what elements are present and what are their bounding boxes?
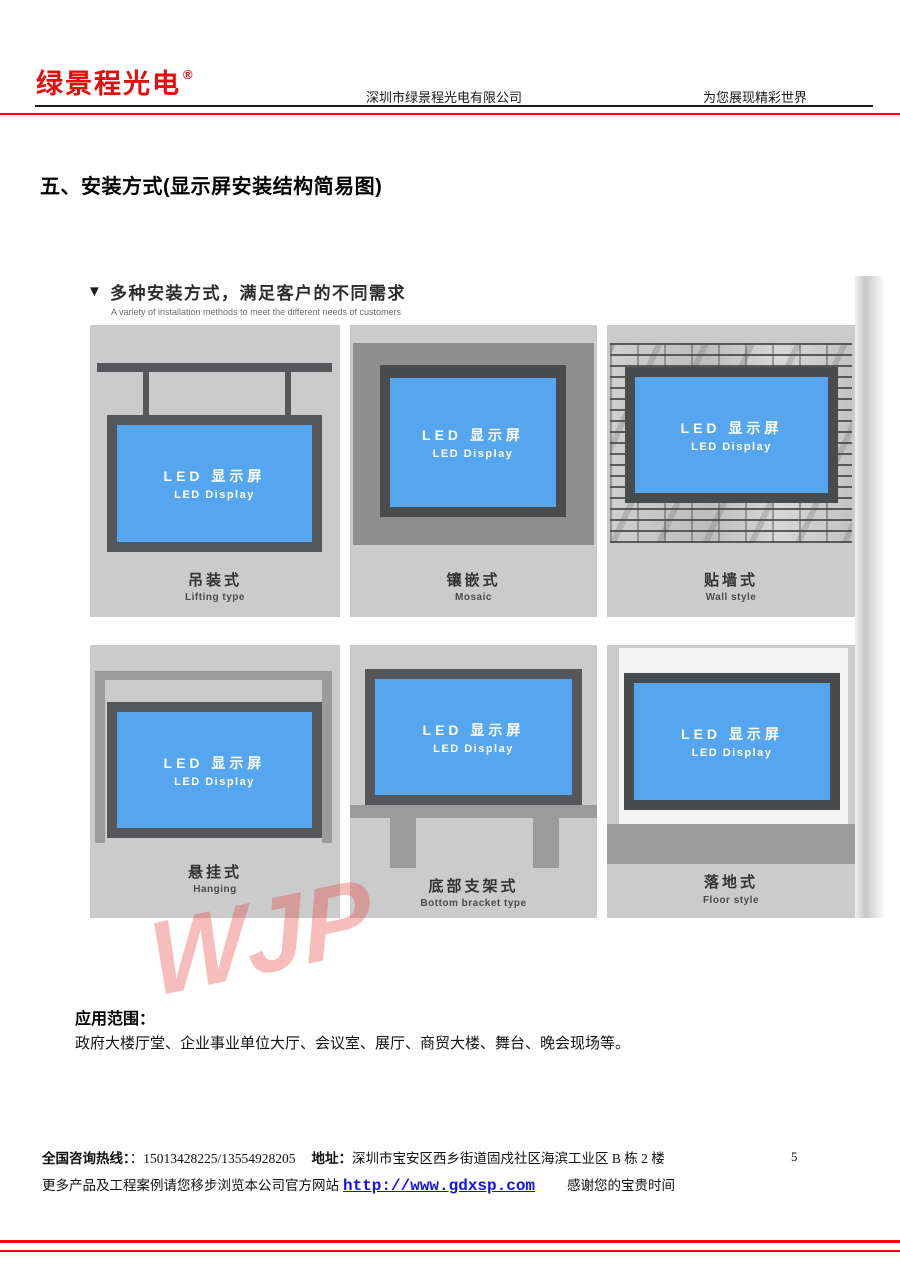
panel-subtitle: A variety of installation methods to mee… xyxy=(111,307,401,317)
company-logo: 绿景程光电® xyxy=(36,62,193,101)
hotline-label: 全国咨询热线： xyxy=(42,1151,130,1166)
hotline-numbers: ：15013428225/13554928205 xyxy=(130,1151,296,1166)
address-label: 地址： xyxy=(312,1151,353,1166)
screen-label-en: LED Display xyxy=(691,441,772,453)
screen-label-cn: LED 显示屏 xyxy=(164,753,266,773)
triangle-marker-icon: ▼ xyxy=(87,283,102,300)
cell-label-cn: 底部支架式 xyxy=(350,875,597,896)
cell-label-cn: 镶嵌式 xyxy=(350,569,597,590)
registered-mark-icon: ® xyxy=(183,67,195,82)
install-cell-lifting: LED 显示屏 LED Display 吊装式 Lifting type xyxy=(90,325,340,617)
screen-label-cn: LED 显示屏 xyxy=(423,720,525,740)
led-display: LED 显示屏 LED Display xyxy=(365,669,582,805)
page-number: 5 xyxy=(791,1149,798,1165)
ceiling-bar xyxy=(97,363,332,372)
led-display: LED 显示屏 LED Display xyxy=(107,415,322,552)
document-page: 绿景程光电® 深圳市绿景程光电有限公司 为您展现精彩世界 五、安装方式(显示屏安… xyxy=(0,0,900,1273)
hanger-rod-left xyxy=(143,372,149,417)
led-display: LED 显示屏 LED Display xyxy=(624,673,840,810)
screen-label-en: LED Display xyxy=(692,747,773,759)
screen-label-en: LED Display xyxy=(174,776,255,788)
install-cell-wall: LED 显示屏 LED Display 贴墙式 Wall style xyxy=(607,325,855,617)
cell-label-en: Bottom bracket type xyxy=(350,898,597,909)
screen-label-cn: LED 显示屏 xyxy=(422,425,524,445)
address-value: 深圳市宝安区西乡街道固戍社区海滨工业区 B 栋 2 楼 xyxy=(352,1151,665,1166)
bracket-shelf-bar xyxy=(350,805,597,818)
panel-title: 多种安装方式，满足客户的不同需求 xyxy=(110,279,406,304)
header-company-name: 深圳市绿景程光电有限公司 xyxy=(366,87,522,106)
led-display: LED 显示屏 LED Display xyxy=(107,702,322,838)
hanging-top-bar xyxy=(95,671,332,680)
cell-label-en: Wall style xyxy=(607,592,855,603)
led-display: LED 显示屏 LED Display xyxy=(625,367,838,503)
installation-panel: ▼ 多种安装方式，满足客户的不同需求 A variety of installa… xyxy=(85,276,885,922)
cell-label-en: Floor style xyxy=(607,895,855,906)
bracket-leg-left xyxy=(390,818,416,868)
screen-label-cn: LED 显示屏 xyxy=(681,724,783,744)
screen-label-cn: LED 显示屏 xyxy=(164,466,266,486)
footer-more-text: 更多产品及工程案例请您移步浏览本公司官方网站 xyxy=(42,1178,339,1193)
bracket-leg-right xyxy=(533,818,559,868)
website-link[interactable]: http://www.gdxsp.com xyxy=(343,1177,535,1195)
screen-label-en: LED Display xyxy=(433,448,514,460)
install-cell-floor: LED 显示屏 LED Display 落地式 Floor style xyxy=(607,645,855,918)
hanger-rod-right xyxy=(285,372,291,417)
led-display: LED 显示屏 LED Display xyxy=(380,365,566,517)
bottom-rule-red-1 xyxy=(0,1240,900,1243)
header-rule-red xyxy=(0,113,900,115)
footer-thanks-text: 感谢您的宝贵时间 xyxy=(567,1178,675,1193)
install-cell-mosaic: LED 显示屏 LED Display 镶嵌式 Mosaic xyxy=(350,325,597,617)
floor-band xyxy=(607,824,855,864)
install-cell-bottom-bracket: LED 显示屏 LED Display 底部支架式 Bottom bracket… xyxy=(350,645,597,918)
cell-label-cn: 贴墙式 xyxy=(607,569,855,590)
application-range-label: 应用范围： xyxy=(75,1005,155,1029)
footer-contact-line: 全国咨询热线：：15013428225/13554928205地址：深圳市宝安区… xyxy=(42,1147,665,1167)
cell-label-en: Mosaic xyxy=(350,592,597,603)
screen-label-cn: LED 显示屏 xyxy=(681,418,783,438)
cell-label-cn: 吊装式 xyxy=(90,569,340,590)
header-slogan: 为您展现精彩世界 xyxy=(703,87,807,106)
panel-right-shade xyxy=(855,276,885,918)
application-range-text: 政府大楼厅堂、企业事业单位大厅、会议室、展厅、商贸大楼、舞台、晚会现场等。 xyxy=(75,1032,630,1053)
screen-label-en: LED Display xyxy=(433,743,514,755)
header-rule-black xyxy=(35,105,873,107)
section-title: 五、安装方式(显示屏安装结构简易图) xyxy=(40,170,382,199)
screen-label-en: LED Display xyxy=(174,489,255,501)
cell-label-cn: 落地式 xyxy=(607,871,855,892)
footer-website-line: 更多产品及工程案例请您移步浏览本公司官方网站http://www.gdxsp.c… xyxy=(42,1174,675,1195)
cell-label-en: Lifting type xyxy=(90,592,340,603)
hanging-post-left xyxy=(95,680,105,843)
bottom-rule-red-2 xyxy=(0,1250,900,1252)
hanging-post-right xyxy=(322,680,332,843)
